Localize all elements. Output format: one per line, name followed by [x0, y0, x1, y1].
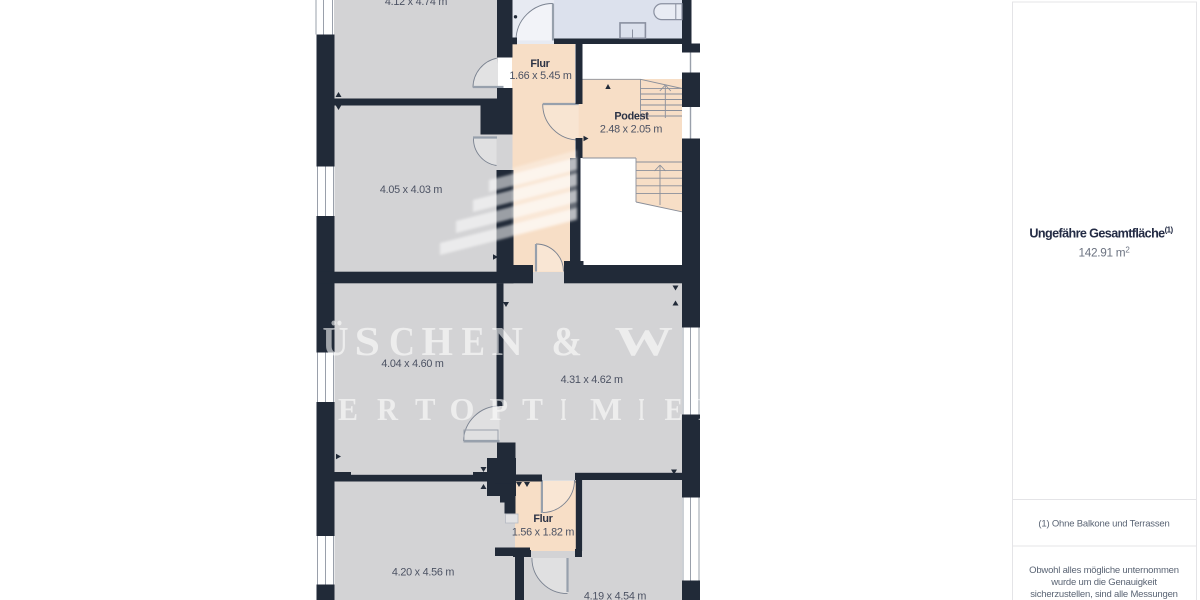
svg-text:4.20 x 4.56 m: 4.20 x 4.56 m — [392, 567, 454, 579]
svg-text:(1) Ohne Balkone und Terrassen: (1) Ohne Balkone und Terrassen — [1038, 519, 1169, 530]
svg-text:sicherzustellen, sind alle Mes: sicherzustellen, sind alle Messungen — [1030, 589, 1178, 600]
svg-text:R: R — [698, 391, 720, 427]
svg-text:N: N — [492, 318, 524, 364]
svg-text:M: M — [590, 391, 622, 427]
svg-text:E: E — [338, 391, 358, 427]
svg-text:Ungefähre Gesamtfläche(1): Ungefähre Gesamtfläche(1) — [1029, 226, 1173, 241]
svg-text:P: P — [490, 391, 509, 427]
svg-text:O: O — [450, 391, 475, 427]
svg-text:Flur: Flur — [530, 58, 550, 70]
svg-text:E: E — [665, 391, 684, 427]
svg-text:4.19 x 4.54 m: 4.19 x 4.54 m — [584, 591, 646, 600]
svg-text:1.66 x 5.45 m: 1.66 x 5.45 m — [509, 70, 571, 82]
svg-text:R: R — [377, 391, 399, 427]
svg-text:C: C — [389, 318, 415, 364]
svg-text:4.12 x 4.74 m: 4.12 x 4.74 m — [385, 0, 447, 8]
svg-text:W: W — [615, 318, 674, 364]
svg-text:142.91 m2: 142.91 m2 — [1079, 246, 1131, 260]
svg-text:Obwohl alles mögliche unternom: Obwohl alles mögliche unternommen — [1029, 565, 1179, 576]
svg-text:H: H — [422, 318, 454, 364]
svg-text:I: I — [639, 391, 645, 427]
svg-text:S: S — [355, 318, 381, 364]
svg-text:4.05 x 4.03 m: 4.05 x 4.03 m — [380, 184, 442, 196]
svg-text:E: E — [462, 318, 486, 364]
svg-text:Flur: Flur — [533, 513, 553, 525]
svg-text:1.56 x 1.82 m: 1.56 x 1.82 m — [512, 526, 574, 538]
svg-text:Ü: Ü — [323, 318, 349, 364]
svg-text:&: & — [552, 318, 583, 364]
svg-text:T: T — [522, 391, 543, 427]
svg-text:Podest: Podest — [614, 111, 649, 123]
svg-text:T: T — [415, 391, 436, 427]
svg-text:4.31 x 4.62 m: 4.31 x 4.62 m — [561, 374, 623, 386]
svg-text:2.48 x 2.05 m: 2.48 x 2.05 m — [600, 123, 662, 135]
svg-text:I: I — [561, 391, 567, 427]
svg-text:wurde um die Genauigkeit: wurde um die Genauigkeit — [1050, 577, 1157, 588]
